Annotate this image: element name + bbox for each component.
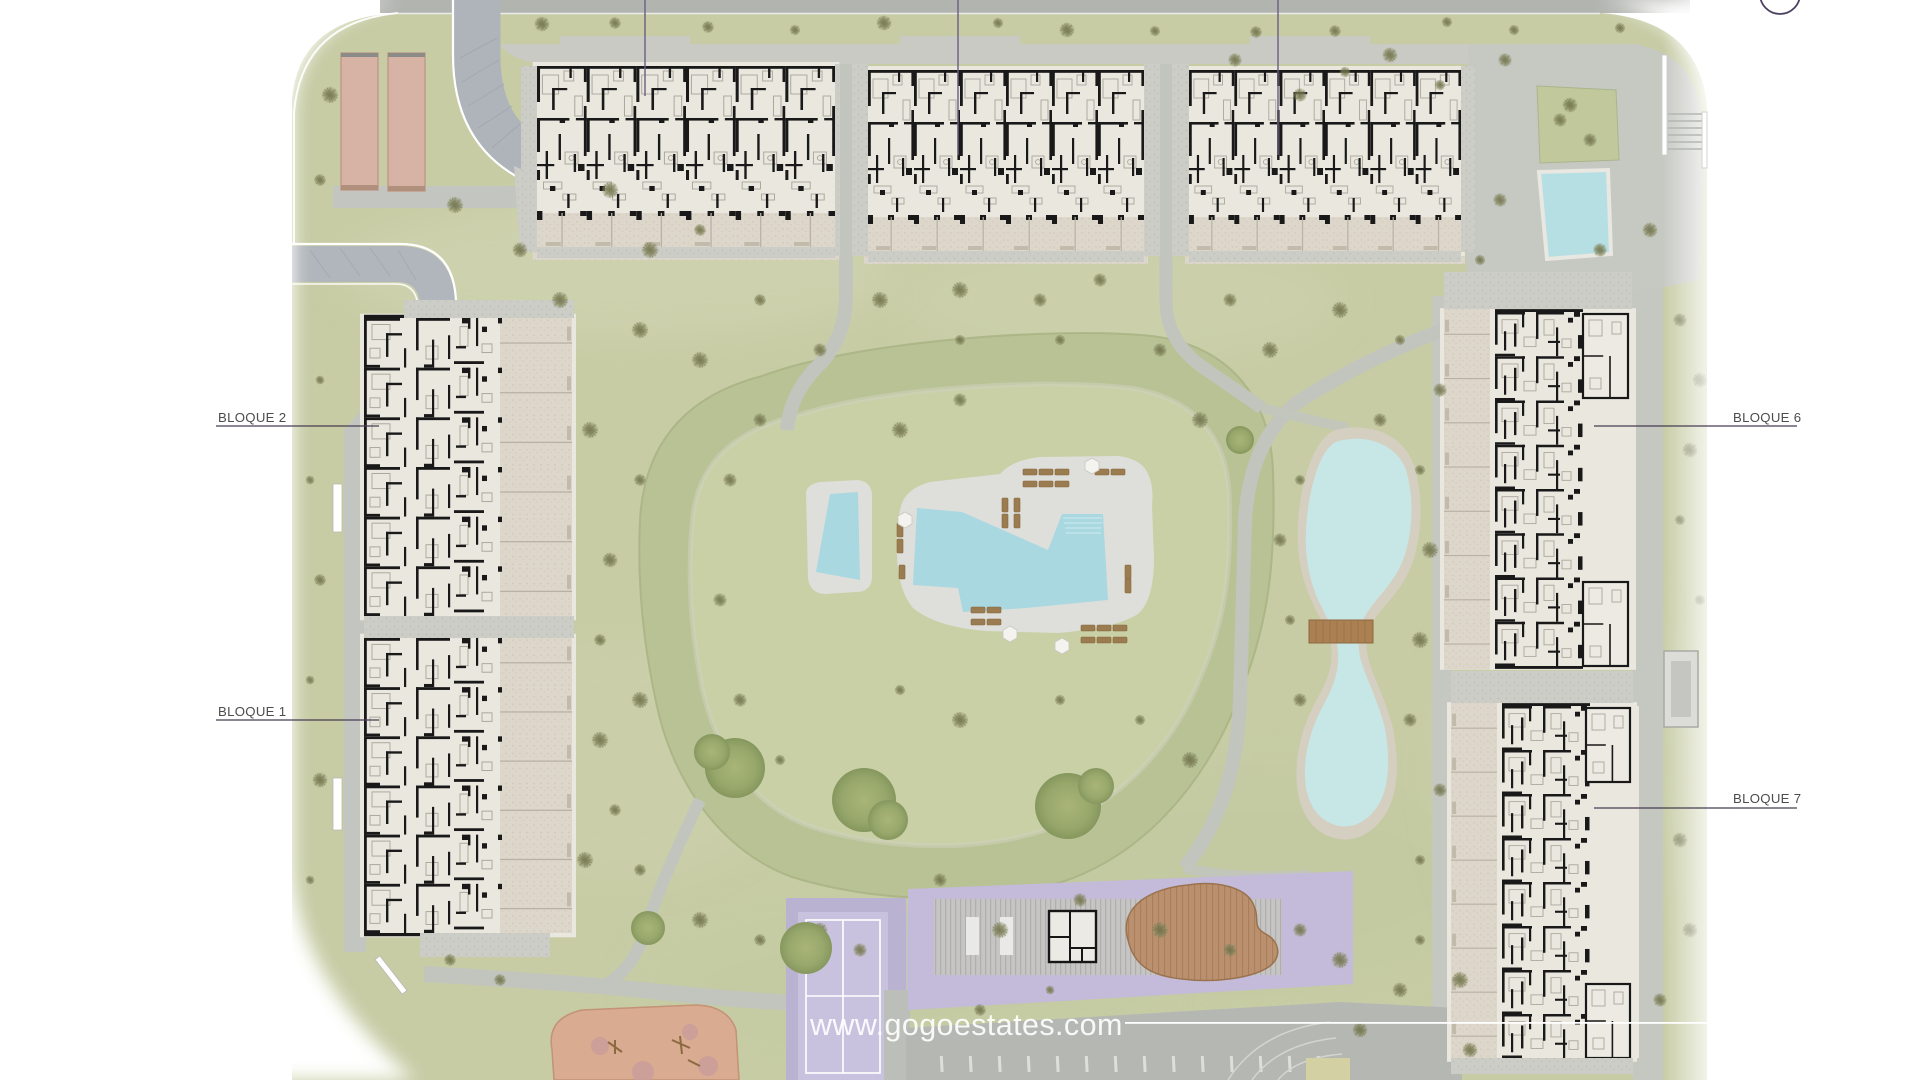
svg-text:BLOQUE 2: BLOQUE 2	[218, 410, 286, 425]
svg-text:BLOQUE 6: BLOQUE 6	[1733, 410, 1801, 425]
svg-text:www.gogoestates.com: www.gogoestates.com	[809, 1008, 1123, 1042]
svg-text:BLOQUE 1: BLOQUE 1	[218, 704, 286, 719]
svg-text:BLOQUE 7: BLOQUE 7	[1733, 791, 1801, 806]
